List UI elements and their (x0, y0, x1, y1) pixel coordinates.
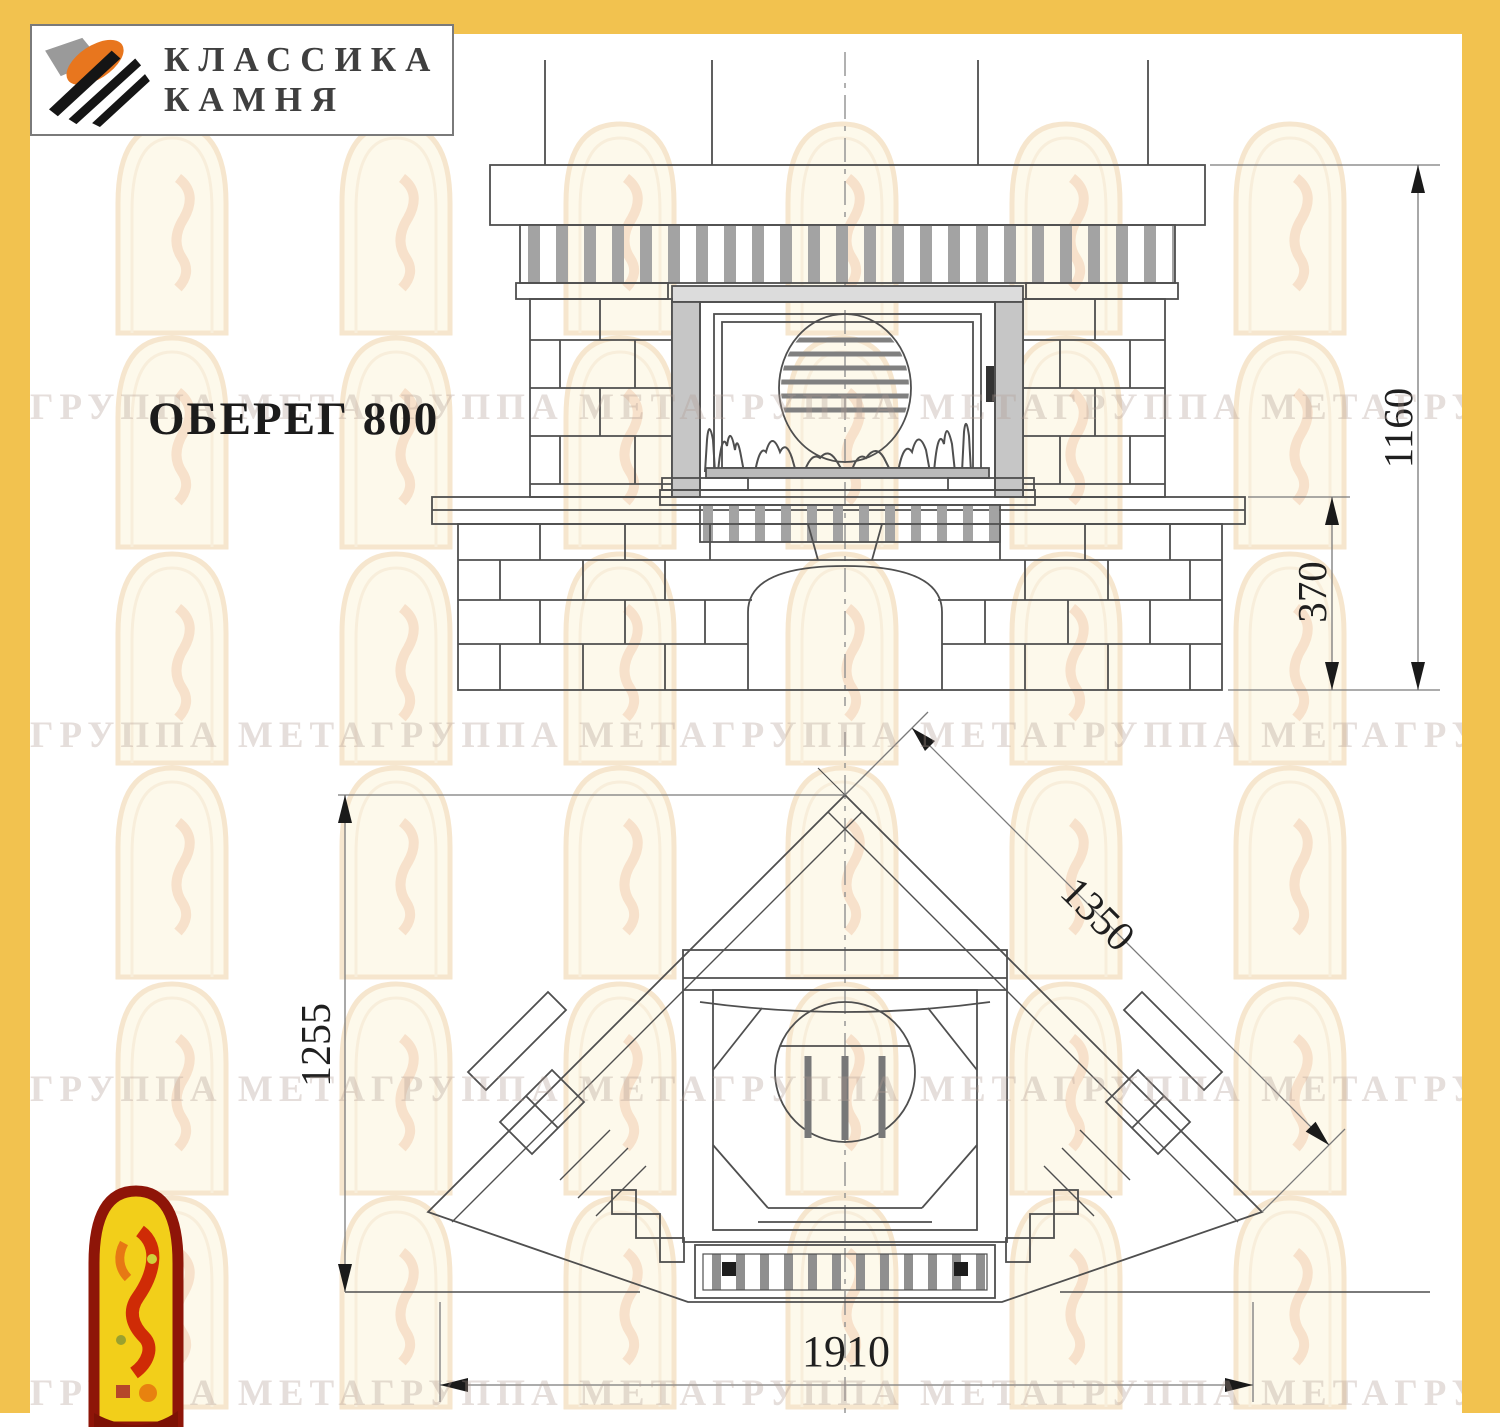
frame-right-bar (1462, 0, 1500, 1413)
frame-left-bar (0, 0, 30, 1413)
brand-logo-box: КЛАССИКА КАМНЯ (30, 24, 454, 136)
brand-name-line1: КЛАССИКА (164, 40, 439, 80)
stone-logo-icon (38, 33, 156, 127)
dim-plinth-height-label: 370 (1289, 561, 1335, 623)
dim-plan-depth-label: 1255 (294, 1003, 340, 1087)
page-title: ОБЕРЕГ 800 (148, 392, 439, 446)
catalog-page: 1160 370 (0, 0, 1500, 1427)
watermark-arch-pattern (118, 124, 1344, 1407)
dim-front-height-label: 1160 (1375, 388, 1421, 468)
technical-drawing: 1160 370 (0, 0, 1500, 1427)
meta-arch-logo-icon (88, 1185, 184, 1427)
dim-plan-width-label: 1910 (802, 1327, 890, 1376)
brand-name-line2: КАМНЯ (164, 80, 439, 120)
